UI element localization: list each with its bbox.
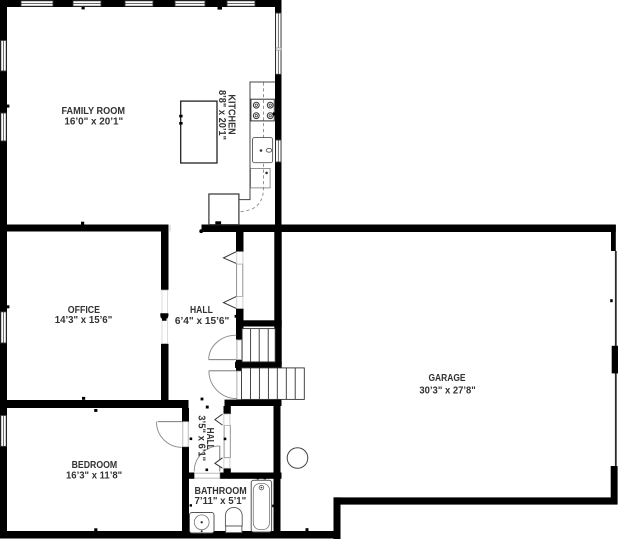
svg-text:6’4" x 15’6": 6’4" x 15’6" (175, 315, 229, 327)
svg-text:GARAGE: GARAGE (428, 372, 465, 384)
svg-text:14’3" x 15’6": 14’3" x 15’6" (55, 314, 113, 326)
svg-text:30’3" x 27’8": 30’3" x 27’8" (419, 385, 475, 397)
svg-text:16’3" x 11’8": 16’3" x 11’8" (66, 469, 122, 481)
svg-text:16’0" x 20’1": 16’0" x 20’1" (64, 115, 123, 127)
svg-text:7’11" x 5’1": 7’11" x 5’1" (195, 495, 247, 507)
svg-text:8’8" x 20’1": 8’8" x 20’1" (216, 90, 228, 140)
svg-text:3’5" x 6’1": 3’5" x 6’1" (195, 415, 207, 461)
